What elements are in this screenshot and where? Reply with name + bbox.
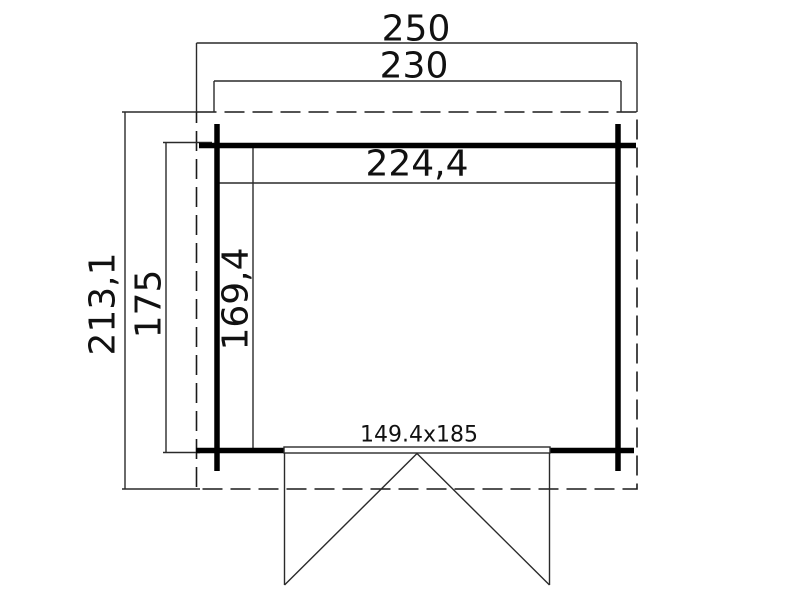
dimension-wall-outer-width: 230 (214, 46, 621, 113)
floor-plan-svg: 250 230 213,1 175 224,4 169,4 (0, 0, 800, 600)
dim-label-interior-depth: 169,4 (216, 247, 257, 350)
dim-label-overall-depth: 213,1 (83, 252, 124, 355)
dim-label-overall-width: 250 (382, 9, 451, 50)
door-size-label: 149.4x185 (360, 423, 478, 448)
dim-label-wall-outer-depth: 175 (129, 270, 170, 339)
dim-label-interior-width: 224,4 (365, 144, 468, 185)
door-leaf-left-swing (285, 454, 418, 586)
floor-plan-drawing: 250 230 213,1 175 224,4 169,4 (0, 0, 800, 600)
dim-label-wall-outer-width: 230 (380, 46, 449, 87)
door: 149.4x185 (284, 423, 550, 586)
door-leaf-right-swing (417, 454, 550, 586)
dimension-interior-width: 224,4 (220, 144, 616, 185)
dimension-interior-depth: 169,4 (216, 148, 257, 448)
dimension-wall-outer-depth: 175 (129, 143, 213, 453)
door-frame (284, 447, 550, 453)
